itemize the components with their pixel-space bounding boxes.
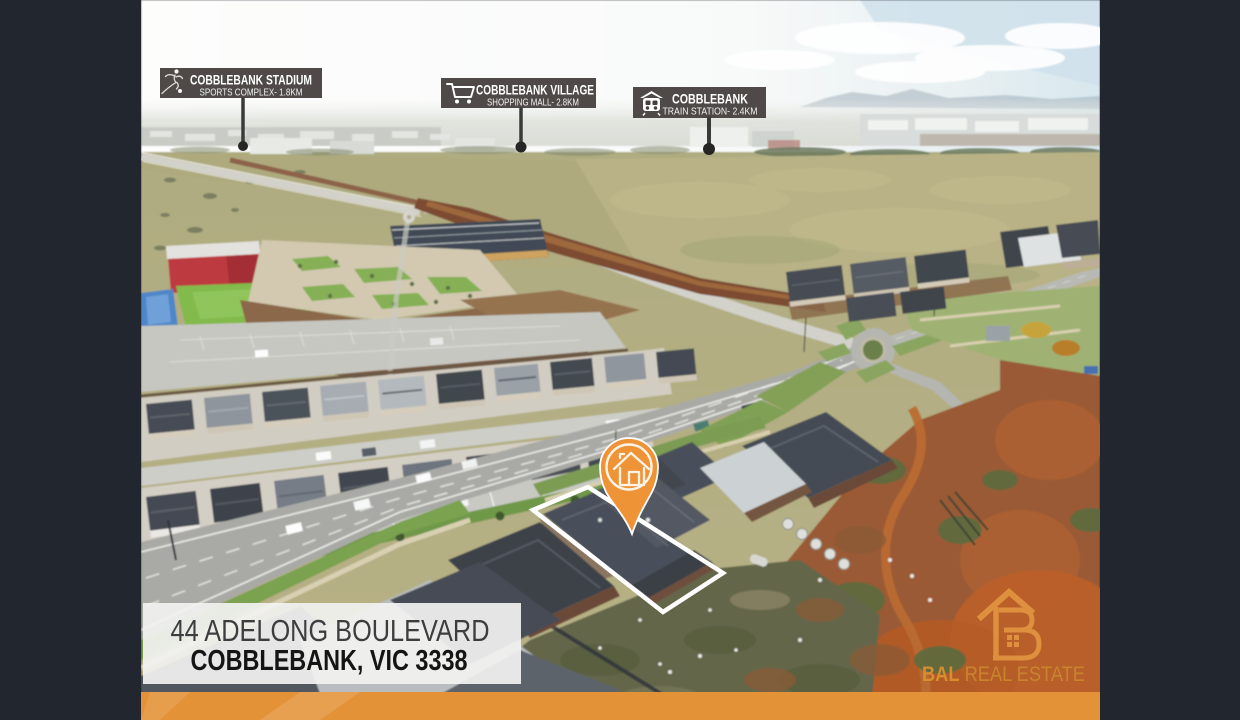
svg-text:BAL REAL ESTATE: BAL REAL ESTATE [922, 663, 1085, 686]
svg-text:44 ADELONG BOULEVARD: 44 ADELONG BOULEVARD [171, 613, 490, 648]
svg-text:COBBLEBANK STADIUM: COBBLEBANK STADIUM [190, 73, 312, 88]
svg-text:COBBLEBANK, VIC 3338: COBBLEBANK, VIC 3338 [191, 645, 468, 677]
svg-text:SPORTS COMPLEX- 1.8KM: SPORTS COMPLEX- 1.8KM [200, 88, 303, 99]
svg-text:TRAIN STATION- 2.4KM: TRAIN STATION- 2.4KM [663, 107, 758, 118]
svg-text:COBBLEBANK VILLAGE: COBBLEBANK VILLAGE [476, 83, 594, 98]
svg-text:COBBLEBANK: COBBLEBANK [672, 92, 748, 107]
svg-text:SHOPPING MALL- 2.8KM: SHOPPING MALL- 2.8KM [487, 98, 579, 109]
